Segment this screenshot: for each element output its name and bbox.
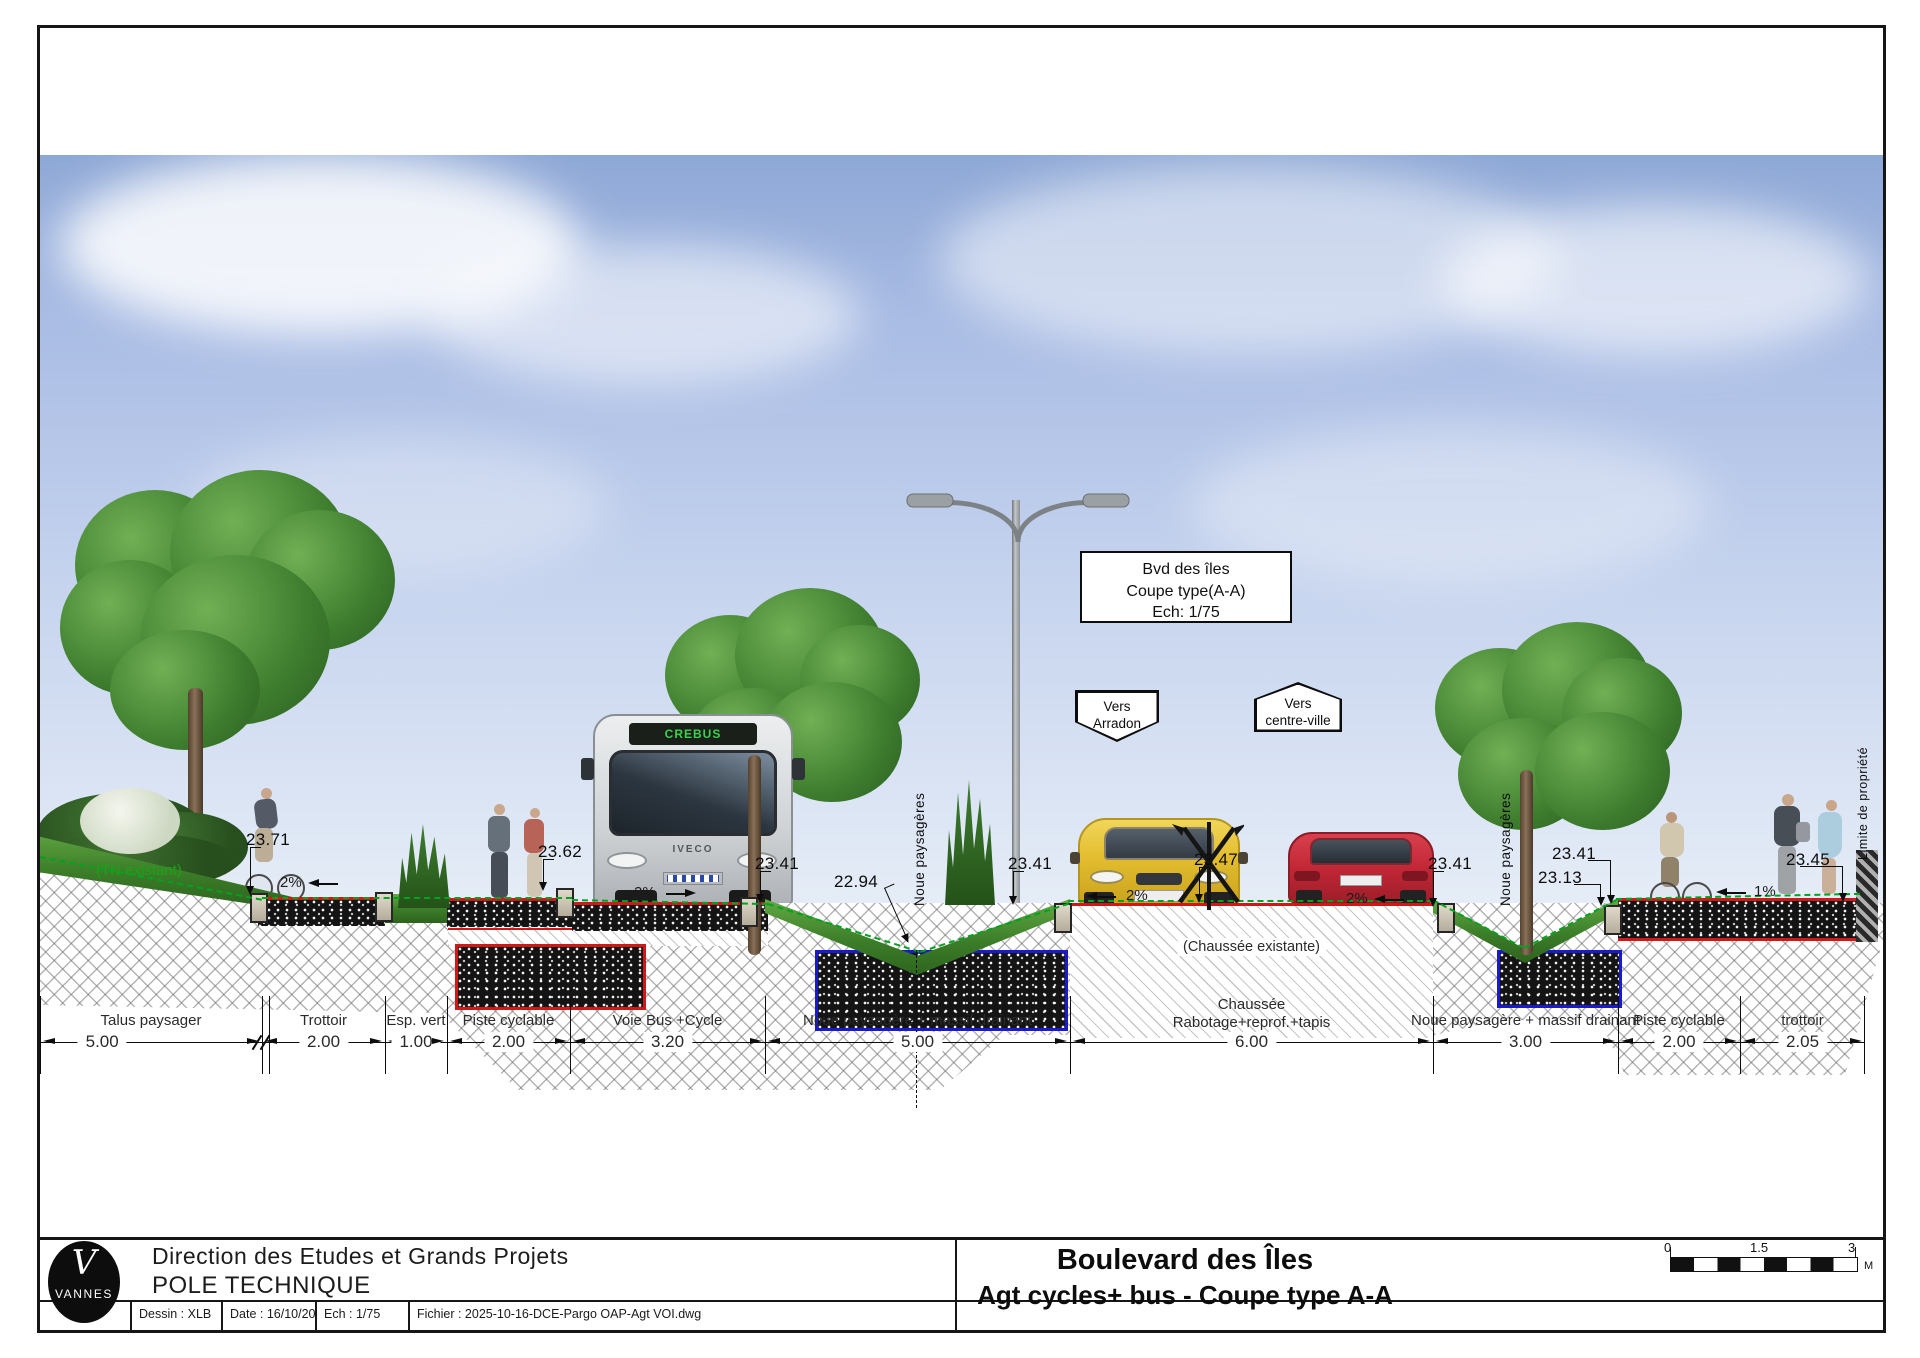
cell-date: Date : 16/10/2025 xyxy=(223,1300,317,1330)
slope-arrow xyxy=(666,893,690,895)
noue-centerline xyxy=(916,950,917,1108)
person-torso xyxy=(253,798,278,830)
piste-cyclable-left-surface xyxy=(447,898,572,927)
dim-value: 3.20 xyxy=(643,1032,692,1052)
extension-line xyxy=(40,996,41,1074)
person-head xyxy=(494,804,505,815)
dim-value: 3.00 xyxy=(1501,1032,1550,1052)
flowering-bush xyxy=(80,788,180,854)
car-rear-window xyxy=(1310,838,1412,865)
cloud xyxy=(1440,205,1870,355)
dimension-esp-vert: Esp. vert 1.00 xyxy=(385,1042,447,1043)
chaussee-existante-label: (Chaussée existante) xyxy=(1177,938,1326,956)
person-torso xyxy=(488,816,510,852)
bus-destination-display: CREBUS xyxy=(629,723,757,745)
dim-label: Noue paysagère + massif drainant xyxy=(1411,1012,1640,1029)
dim-label: trottoir xyxy=(1781,1012,1824,1029)
extension-line xyxy=(1740,996,1741,1074)
vannes-logo-initial: V xyxy=(48,1241,120,1285)
scalebar-unit: M xyxy=(1864,1260,1873,1272)
extension-line xyxy=(765,996,766,1074)
extension-line xyxy=(1433,996,1434,1074)
dim-value: 1.00 xyxy=(391,1032,440,1052)
slope-arrow xyxy=(314,883,338,885)
leader-line xyxy=(1199,867,1210,898)
dim-label: Esp. vert xyxy=(386,1012,445,1029)
extension-line xyxy=(1864,996,1865,1074)
cell-fichier: Fichier : 2025-10-16-DCE-Pargo OAP-Agt V… xyxy=(410,1300,955,1330)
car-taillight xyxy=(1294,871,1320,881)
scalebar-tick-mid: 1.5 xyxy=(1750,1240,1768,1255)
slope-arrow xyxy=(1722,892,1746,894)
person-legs xyxy=(491,852,508,898)
org-name: Direction des Etudes et Grands Projets xyxy=(152,1243,569,1270)
leader-line xyxy=(1574,884,1601,901)
extension-line xyxy=(570,996,571,1074)
dim-value: 6.00 xyxy=(1227,1032,1276,1052)
extension-line xyxy=(1618,996,1619,1074)
leader-line xyxy=(1433,871,1444,902)
dim-value: 2.00 xyxy=(299,1032,348,1052)
shoulder-bag xyxy=(1796,822,1810,842)
leader-line xyxy=(760,871,771,898)
street-lamp-pole xyxy=(1012,500,1020,906)
property-line-bar xyxy=(1856,850,1878,942)
sign-line2: centre-ville xyxy=(1257,712,1340,730)
cloud xyxy=(430,245,860,385)
vannes-logo-name: VANNES xyxy=(48,1287,120,1301)
person-head xyxy=(1826,800,1837,811)
piste-trottoir-right-surface xyxy=(1618,898,1868,941)
car-mirror xyxy=(1070,852,1080,864)
section-callout-box: Bvd des îles Coupe type(A-A) Ech: 1/75 xyxy=(1080,551,1292,623)
slope-label: 2% xyxy=(280,874,302,891)
slope-arrow xyxy=(1092,896,1116,898)
slope-arrow xyxy=(1380,899,1404,901)
tree-canopy xyxy=(110,630,260,750)
org-department: POLE TECHNIQUE xyxy=(152,1272,371,1300)
sheet-title-line1: Boulevard des Îles xyxy=(950,1244,1420,1277)
sign-line1: Vers xyxy=(1078,698,1157,716)
curb-stone xyxy=(1604,905,1622,935)
dimension-piste-left: Piste cyclable 2.00 xyxy=(447,1042,570,1043)
leader-line xyxy=(250,847,261,890)
scale-bar xyxy=(1670,1257,1858,1272)
dim-value: 2.00 xyxy=(1654,1032,1703,1052)
dimension-chaussee: Chaussée Rabotage+reprof.+tapis 6.00 xyxy=(1070,1042,1433,1043)
drawing-sheet: CREBUS IVECO xyxy=(0,0,1920,1358)
dim-label: Piste cyclable xyxy=(463,1012,555,1029)
person-torso xyxy=(1660,823,1684,857)
dimension-piste-right: Piste cyclable 2.00 xyxy=(1618,1042,1740,1043)
sign-line1: Vers xyxy=(1257,695,1340,713)
leader-line xyxy=(1013,871,1024,900)
bus-license-plate xyxy=(663,872,723,885)
extension-line xyxy=(447,996,448,1074)
dimension-noue-right: Noue paysagère + massif drainant 3.00 xyxy=(1433,1042,1618,1043)
car-license-plate xyxy=(1340,875,1382,886)
callout-line2: Coupe type(A-A) xyxy=(1082,581,1290,603)
titleblock-divider xyxy=(37,1237,1883,1240)
dim-label: Piste cyclable xyxy=(1633,1012,1725,1029)
sheet-title: Boulevard des Îles Agt cycles+ bus - Cou… xyxy=(950,1244,1420,1311)
slope-label: 2% xyxy=(1126,887,1148,904)
scalebar-end-tick xyxy=(1670,1247,1671,1257)
dim-label: Trottoir xyxy=(300,1012,347,1029)
person-head xyxy=(1782,794,1794,806)
cell-dessin: Dessin : XLB xyxy=(130,1300,223,1330)
dimension-talus: Talus paysager 5.00 xyxy=(40,1042,262,1043)
dimension-voie-bus: Voie Bus +Cycle 3.20 xyxy=(570,1042,765,1043)
tn-dashed-line xyxy=(262,897,572,899)
slope-label: 2% xyxy=(634,884,656,901)
leader-line xyxy=(1800,866,1843,897)
dim-label2: Rabotage+reprof.+tapis xyxy=(1173,1014,1331,1031)
voie-bus-surface xyxy=(572,902,768,931)
callout-line1: Bvd des îles xyxy=(1082,559,1290,581)
bus-mirror xyxy=(581,758,594,780)
dim-value: 2.00 xyxy=(484,1032,533,1052)
dim-label: Voie Bus +Cycle xyxy=(613,1012,723,1029)
trottoir-left-surface xyxy=(258,897,385,926)
person-head xyxy=(261,788,272,799)
person-head xyxy=(1666,812,1677,823)
dim-value: 2.05 xyxy=(1778,1032,1827,1052)
dim-label: Chaussée xyxy=(1218,996,1286,1013)
dim-label: Talus paysager xyxy=(101,1012,202,1029)
slope-label: 1% xyxy=(1754,883,1776,900)
massif-drainant-right xyxy=(1497,950,1622,1008)
vannes-logo: V VANNES xyxy=(48,1241,120,1323)
dimension-trottoir-right: trottoir 2.05 xyxy=(1740,1042,1865,1043)
dimension-noue-left: Noue paysagère + massif drainant 5.00 xyxy=(765,1042,1070,1043)
tn-existant-label: (TN existant) xyxy=(96,862,182,879)
elevation-label: 22.94 xyxy=(834,872,878,892)
sheet-title-line2: Agt cycles+ bus - Coupe type A-A xyxy=(950,1280,1420,1311)
dim-value: 5.00 xyxy=(78,1032,127,1052)
scalebar-end-tick xyxy=(1855,1247,1856,1257)
tree-trunk xyxy=(1520,770,1533,955)
dim-value: 5.00 xyxy=(893,1032,942,1052)
noue-right-vertical-label: Noue paysagères xyxy=(1498,726,1513,906)
callout-line3: Ech: 1/75 xyxy=(1082,602,1290,624)
bus-mirror xyxy=(792,758,805,780)
slope-label: 2% xyxy=(1346,890,1368,907)
limite-propriete-label: Limite de propriété xyxy=(1856,710,1870,860)
person-head xyxy=(530,808,540,818)
curb-stone xyxy=(556,888,574,918)
noue-left-vertical-label: Noue paysagères xyxy=(912,726,927,906)
leader-line xyxy=(543,859,554,886)
extension-line xyxy=(1070,996,1071,1074)
extension-line xyxy=(385,996,386,1074)
cell-ech: Ech : 1/75 xyxy=(317,1300,410,1330)
dimension-trottoir: Trottoir 2.00 xyxy=(262,1042,385,1043)
street-lamp-arms xyxy=(905,482,1131,544)
car-headlight xyxy=(1090,870,1124,884)
new-pavement-structure xyxy=(455,944,646,1010)
dim-label: Noue paysagère + massif drainant xyxy=(803,1012,1032,1029)
car-taillight xyxy=(1402,871,1428,881)
